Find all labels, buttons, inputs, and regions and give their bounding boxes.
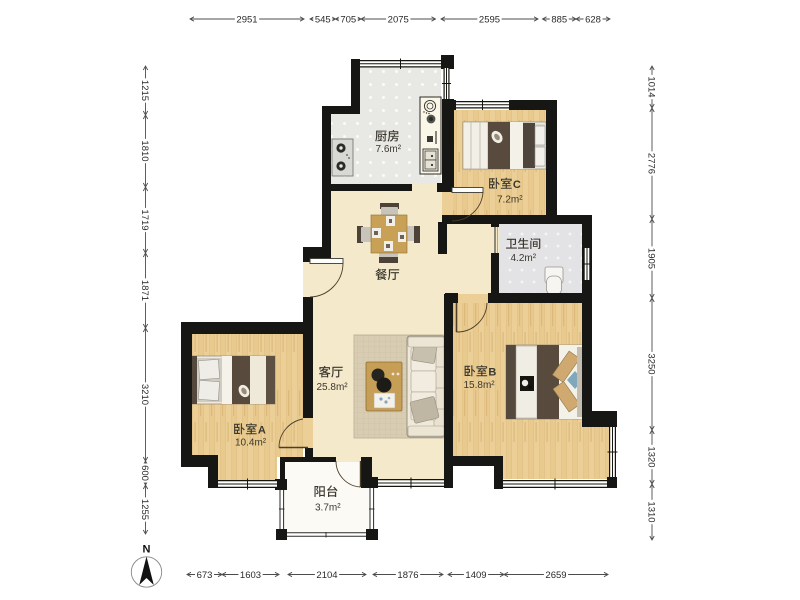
svg-text:25.8m²: 25.8m² — [317, 382, 349, 393]
svg-text:1719: 1719 — [139, 209, 150, 230]
svg-text:B: B — [488, 367, 496, 379]
svg-text:2659: 2659 — [545, 570, 566, 581]
svg-text:673: 673 — [197, 570, 213, 581]
svg-text:7.2m²: 7.2m² — [497, 195, 523, 206]
svg-text:1905: 1905 — [646, 248, 657, 269]
svg-text:N: N — [143, 544, 151, 556]
svg-text:1871: 1871 — [139, 280, 150, 301]
svg-text:1320: 1320 — [646, 446, 657, 467]
svg-text:1014: 1014 — [646, 76, 657, 97]
svg-text:2075: 2075 — [388, 14, 409, 25]
svg-text:10.4m²: 10.4m² — [235, 438, 267, 449]
svg-text:C: C — [513, 179, 521, 191]
svg-text:3210: 3210 — [139, 384, 150, 405]
svg-text:1255: 1255 — [139, 499, 150, 520]
svg-text:1810: 1810 — [139, 140, 150, 161]
svg-text:2776: 2776 — [646, 153, 657, 174]
svg-text:7.6m²: 7.6m² — [376, 144, 402, 155]
svg-text:3250: 3250 — [646, 353, 657, 374]
svg-text:600: 600 — [139, 465, 150, 481]
svg-text:885: 885 — [551, 14, 567, 25]
svg-text:2104: 2104 — [316, 570, 337, 581]
svg-text:2951: 2951 — [236, 14, 257, 25]
svg-text:705: 705 — [340, 14, 356, 25]
svg-text:2595: 2595 — [479, 14, 500, 25]
svg-text:15.8m²: 15.8m² — [464, 380, 496, 391]
svg-text:1603: 1603 — [240, 570, 261, 581]
svg-text:4.2m²: 4.2m² — [511, 253, 537, 264]
svg-text:1310: 1310 — [646, 501, 657, 522]
svg-text:3.7m²: 3.7m² — [315, 503, 341, 514]
svg-text:A: A — [258, 425, 266, 437]
svg-text:1876: 1876 — [397, 570, 418, 581]
svg-text:1409: 1409 — [465, 570, 486, 581]
svg-text:1215: 1215 — [139, 80, 150, 101]
svg-text:628: 628 — [585, 14, 601, 25]
svg-text:545: 545 — [315, 14, 331, 25]
